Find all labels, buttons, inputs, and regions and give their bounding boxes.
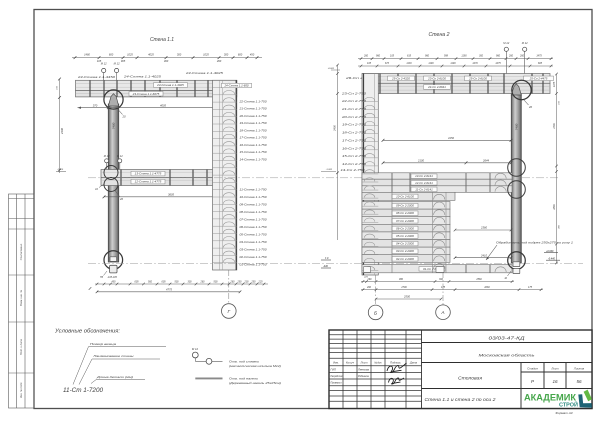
svg-text:Ленкова: Ленкова (357, 367, 370, 371)
svg-text:25-Сп 2-6100: 25-Сп 2-6100 (468, 76, 487, 80)
svg-text:Условные обозначения:: Условные обозначения: (54, 329, 121, 335)
svg-text:300: 300 (479, 55, 484, 58)
svg-text:105: 105 (390, 55, 395, 58)
svg-text:2060: 2060 (483, 286, 490, 289)
svg-text:25-Сп 2-4320: 25-Сп 2-4320 (391, 76, 410, 80)
svg-text:500: 500 (214, 280, 219, 283)
svg-text:105: 105 (367, 62, 372, 65)
svg-text:А: А (440, 310, 444, 316)
svg-text:09-Стена 1.1-750: 09-Стена 1.1-750 (240, 203, 267, 207)
svg-text:2860: 2860 (553, 204, 556, 211)
svg-text:Б: Б (374, 310, 377, 316)
svg-text:18-Сп 2-750: 18-Сп 2-750 (342, 131, 367, 135)
svg-text:Номер венца: Номер венца (90, 342, 116, 346)
svg-text:М 12: М 12 (104, 154, 110, 158)
svg-text:2400: 2400 (333, 125, 337, 132)
svg-text:24-Стена 1.1-4025: 24-Стена 1.1-4025 (123, 75, 162, 79)
svg-text:09-Сп 2-2000: 09-Сп 2-2000 (396, 204, 414, 208)
svg-text:Согласовано: Согласовано (19, 243, 23, 260)
svg-text:24-Стена 1.1-4025: 24-Стена 1.1-4025 (185, 71, 224, 75)
svg-text:23-Сп 2-6100: 23-Сп 2-6100 (427, 76, 446, 80)
svg-text:Разработал: Разработал (331, 374, 344, 378)
svg-text:260: 260 (519, 55, 525, 58)
svg-text:260: 260 (230, 280, 236, 283)
svg-text:11-Сп 2-6141: 11-Сп 2-6141 (415, 187, 433, 191)
svg-text:03-Стена 1.1-750: 03-Стена 1.1-750 (240, 248, 267, 252)
svg-text:1470: 1470 (472, 62, 478, 65)
svg-text:19-Стена 1.1-750: 19-Стена 1.1-750 (240, 121, 267, 125)
svg-text:260: 260 (363, 55, 369, 58)
svg-text:Стена 1.1 и стена 2 по оси 2: Стена 1.1 и стена 2 по оси 2 (425, 397, 497, 402)
svg-text:Стена 1.1: Стена 1.1 (150, 37, 174, 43)
svg-text:М 12: М 12 (117, 154, 123, 158)
svg-text:24-Стена 1.1-650: 24-Стена 1.1-650 (223, 84, 248, 88)
svg-text:Обработать под подрез 250х275: Обработать под подрез 250х275 по углу 1 (496, 241, 574, 245)
svg-text:05-Сп 2-2000: 05-Сп 2-2000 (396, 234, 414, 238)
svg-text:15-Сп 2-750: 15-Сп 2-750 (342, 154, 367, 158)
svg-text:20-Стена 1.1-750: 20-Стена 1.1-750 (238, 114, 267, 118)
svg-text:20: 20 (121, 115, 126, 119)
svg-text:7400: 7400 (515, 123, 519, 130)
svg-text:200: 200 (244, 280, 250, 283)
svg-text:Формат А3: Формат А3 (556, 411, 573, 415)
svg-text:4025: 4025 (148, 53, 154, 57)
svg-text:08-Стена 1.1-750: 08-Стена 1.1-750 (240, 210, 267, 214)
svg-text:260: 260 (200, 280, 206, 283)
svg-text:08-Сп 2-2000: 08-Сп 2-2000 (396, 211, 414, 215)
svg-text:4775: 4775 (166, 288, 172, 292)
svg-text:Изм.: Изм. (333, 360, 339, 364)
svg-text:1475: 1475 (495, 62, 501, 65)
svg-text:Проверил: Проверил (331, 381, 342, 385)
svg-text:300: 300 (188, 280, 193, 283)
svg-text:Подп. и дата: Подп. и дата (19, 338, 23, 355)
svg-text:21-Сп 2-750: 21-Сп 2-750 (341, 107, 367, 111)
svg-text:905: 905 (121, 59, 126, 63)
svg-text:300: 300 (177, 53, 182, 57)
svg-text:Длина детали (мм): Длина детали (мм) (96, 375, 133, 379)
svg-text:260: 260 (216, 59, 222, 63)
svg-text:24-Стена 1.1-4025: 24-Стена 1.1-4025 (156, 83, 184, 87)
svg-text:260: 260 (508, 55, 514, 58)
svg-text:10-Стена 1.1-750: 10-Стена 1.1-750 (240, 195, 267, 199)
svg-text:14-Сп 2-750: 14-Сп 2-750 (341, 168, 366, 172)
svg-text:500: 500 (148, 280, 153, 283)
svg-text:4005: 4005 (160, 103, 166, 107)
svg-text:175: 175 (528, 286, 533, 289)
svg-text:Наименование стены: Наименование стены (94, 354, 135, 358)
svg-text:11-Стена 1.1-750: 11-Стена 1.1-750 (240, 188, 267, 192)
svg-text:Отв. под стяжки: Отв. под стяжки (229, 359, 259, 363)
svg-text:260: 260 (366, 286, 372, 289)
svg-text:14-Сп 2-750: 14-Сп 2-750 (342, 162, 367, 166)
svg-text:21-Стена 1.1-750: 21-Стена 1.1-750 (238, 107, 267, 111)
svg-text:Инв. № подл.: Инв. № подл. (19, 382, 23, 398)
svg-text:980: 980 (399, 278, 404, 281)
svg-text:05-Стена 1.1-750: 05-Стена 1.1-750 (240, 233, 267, 237)
svg-text:250: 250 (237, 280, 243, 283)
svg-text:25-Сп 2-4475: 25-Сп 2-4475 (529, 76, 548, 80)
svg-text:Листов: Листов (573, 367, 585, 371)
svg-text:Московская область: Московская область (479, 353, 535, 358)
svg-text:03/03-47-КД: 03/03-47-КД (489, 336, 526, 341)
svg-text:Г: Г (227, 309, 230, 315)
svg-text:-6.600: -6.600 (328, 68, 335, 70)
svg-text:18-Стена 1.1-750: 18-Стена 1.1-750 (240, 128, 267, 132)
svg-text:М 12: М 12 (192, 347, 199, 351)
svg-text:06-Стена 1.1-750: 06-Стена 1.1-750 (240, 225, 267, 229)
svg-text:М 12: М 12 (114, 62, 120, 66)
svg-text:370: 370 (93, 103, 98, 107)
svg-text:300: 300 (164, 59, 169, 63)
svg-text:СТРОЙ: СТРОЙ (559, 400, 578, 408)
svg-text:673: 673 (385, 62, 390, 65)
svg-text:13-Сп 2-6141: 13-Сп 2-6141 (415, 174, 433, 178)
svg-text:Подпись: Подпись (390, 360, 401, 364)
svg-text:2644: 2644 (482, 158, 489, 162)
svg-text:960: 960 (496, 55, 501, 58)
svg-text:Столовая: Столовая (458, 376, 483, 381)
svg-text:24-Стена 1.1-4450: 24-Стена 1.1-4450 (77, 75, 116, 79)
svg-text:20: 20 (528, 105, 533, 109)
svg-text:250: 250 (251, 280, 257, 283)
svg-text:-1.000: -1.000 (57, 169, 64, 171)
svg-text:Дата: Дата (409, 360, 418, 364)
svg-text:450: 450 (250, 53, 255, 57)
svg-text:Рябинкин: Рябинкин (358, 374, 369, 378)
svg-text:04-Стена 1.1-750: 04-Стена 1.1-750 (240, 240, 267, 244)
svg-text:№док: №док (374, 360, 382, 364)
svg-text:16-Стена 1.1-750: 16-Стена 1.1-750 (240, 143, 267, 147)
svg-text:2500: 2500 (403, 295, 410, 299)
svg-text:598: 598 (444, 55, 449, 58)
svg-text:06-Сп 2-2000: 06-Сп 2-2000 (396, 226, 414, 230)
svg-text:АКАДЕМИК: АКАДЕМИК (524, 393, 577, 403)
svg-text:-105-105: -105-105 (107, 276, 117, 279)
svg-text:1130: 1130 (406, 62, 412, 65)
svg-text:ТВ: ТВ (100, 276, 103, 279)
svg-text:10-Сп 2-6100: 10-Сп 2-6100 (396, 194, 414, 198)
svg-text:07-Сп 2-2000: 07-Сп 2-2000 (396, 219, 414, 223)
svg-text:1025: 1025 (127, 53, 133, 57)
svg-text:175: 175 (441, 286, 446, 289)
svg-text:1190: 1190 (461, 55, 467, 58)
svg-text:225: 225 (363, 276, 368, 278)
svg-text:22-Стена 1.1-750: 22-Стена 1.1-750 (238, 99, 267, 103)
svg-text:16: 16 (552, 379, 558, 384)
svg-text:М 12: М 12 (522, 41, 528, 45)
svg-text:1025: 1025 (203, 53, 209, 57)
svg-text:2560: 2560 (475, 278, 482, 281)
svg-text:2400: 2400 (60, 128, 64, 135)
svg-text:260: 260 (367, 278, 373, 281)
svg-text:11-Ст 1-7200: 11-Ст 1-7200 (63, 387, 103, 394)
svg-text:23-Стена 1.1-6075: 23-Стена 1.1-6075 (132, 92, 160, 96)
svg-text:-1.000: -1.000 (326, 169, 333, 171)
svg-text:Лист: Лист (360, 360, 369, 364)
svg-text:13-Стена 1.1-4775: 13-Стена 1.1-4775 (135, 172, 162, 176)
svg-text:Стена 2: Стена 2 (429, 32, 450, 38)
svg-text:12-Сп 2-6141: 12-Сп 2-6141 (415, 181, 433, 185)
svg-text:225: 225 (258, 280, 264, 283)
svg-text:2360: 2360 (480, 226, 487, 230)
svg-text:14-Стена 1.1-750: 14-Стена 1.1-750 (240, 157, 267, 161)
svg-text:М 12: М 12 (503, 41, 509, 45)
svg-text:300: 300 (224, 53, 229, 57)
svg-text:1190: 1190 (450, 62, 456, 65)
svg-text:4150: 4150 (448, 136, 454, 140)
svg-text:1475: 1475 (536, 55, 542, 58)
svg-text:ГИП: ГИП (331, 367, 336, 371)
svg-text:2700: 2700 (400, 286, 407, 289)
svg-text:960: 960 (376, 55, 381, 58)
svg-text:17-Стена 1.1-750: 17-Стена 1.1-750 (240, 136, 267, 140)
svg-text:24-Сп 2-6641: 24-Сп 2-6641 (427, 85, 446, 89)
svg-text:12-Стена 1.1-4775: 12-Стена 1.1-4775 (135, 180, 162, 184)
svg-text:3605: 3605 (168, 192, 174, 196)
svg-text:605: 605 (162, 280, 167, 283)
svg-text:М 12: М 12 (101, 62, 107, 66)
svg-text:600: 600 (238, 53, 243, 57)
svg-text:1475: 1475 (553, 81, 556, 87)
svg-text:19-Сп 2-750: 19-Сп 2-750 (342, 123, 367, 127)
svg-text:7400: 7400 (112, 122, 116, 129)
svg-text:03-Сп 2-2000: 03-Сп 2-2000 (396, 249, 414, 253)
svg-text:20: 20 (119, 197, 124, 201)
svg-text:02-Сп 2-2000: 02-Сп 2-2000 (396, 257, 414, 261)
svg-text:02-Стена 1.1-750: 02-Стена 1.1-750 (240, 255, 267, 259)
svg-text:Стадия: Стадия (527, 367, 538, 371)
svg-text:Взам. инв. №: Взам. инв. № (19, 290, 23, 306)
svg-text:600: 600 (109, 53, 114, 57)
svg-text:815: 815 (407, 55, 412, 58)
svg-text:2100: 2100 (417, 158, 424, 162)
svg-text:Лист: Лист (550, 367, 559, 371)
svg-text:20-Сп 2-750: 20-Сп 2-750 (341, 115, 367, 119)
svg-text:Отв. под нагели: Отв. под нагели (229, 376, 258, 380)
svg-text:2700: 2700 (553, 123, 556, 130)
svg-text:07-Стена 1.1-750: 07-Стена 1.1-750 (240, 218, 267, 222)
svg-text:960: 960 (425, 55, 430, 58)
svg-text:23-Сп 2-750: 23-Сп 2-750 (341, 91, 367, 95)
svg-text:2410: 2410 (480, 253, 487, 257)
svg-text:22-Сп 2-750: 22-Сп 2-750 (341, 99, 367, 103)
svg-text:605: 605 (135, 280, 140, 283)
svg-text:Кол.уч: Кол.уч (346, 360, 355, 364)
svg-text:(Деревянный нагель 25х25см): (Деревянный нагель 25х25см) (229, 381, 281, 385)
svg-text:450: 450 (112, 280, 117, 283)
svg-text:500: 500 (175, 280, 180, 283)
svg-text:56: 56 (576, 379, 582, 384)
svg-text:1190: 1190 (428, 62, 434, 65)
svg-text:15-Стена 1.1-750: 15-Стена 1.1-750 (240, 150, 267, 154)
svg-text:(металлическая шпилька М12): (металлическая шпилька М12) (229, 364, 281, 368)
svg-text:605: 605 (538, 62, 543, 65)
svg-text:04-Сп 2-2000: 04-Сп 2-2000 (396, 242, 414, 246)
svg-text:1460: 1460 (84, 53, 90, 57)
